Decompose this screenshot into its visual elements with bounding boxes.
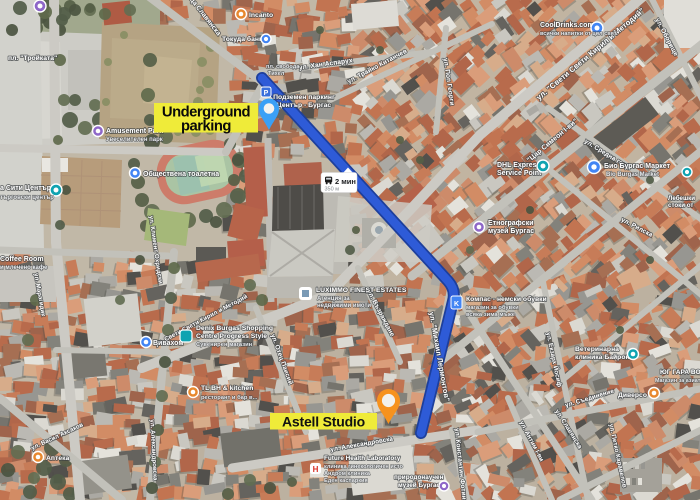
svg-text:parking: parking xyxy=(181,119,231,135)
svg-text:музей Бургас: музей Бургас xyxy=(398,481,441,489)
svg-text:магазин за обувки: магазин за обувки xyxy=(466,304,519,311)
svg-text:Диверсо: Диверсо xyxy=(618,392,647,399)
svg-text:DHL Express: DHL Express xyxy=(497,162,541,169)
svg-text:Компас - немски обувки: Компас - немски обувки xyxy=(466,295,547,303)
svg-text:2 мин: 2 мин xyxy=(335,177,356,186)
svg-text:Андром клиника: Андром клиника xyxy=(324,471,371,477)
svg-text:Подземен паркинг: Подземен паркинг xyxy=(273,94,335,101)
svg-text:Denix Burgas Shopping: Denix Burgas Shopping xyxy=(196,325,273,332)
svg-text:клиника Байрон: клиника Байрон xyxy=(575,353,630,361)
svg-text:Увеселителен парк: Увеселителен парк xyxy=(106,137,163,143)
svg-text:Център - Бургас: Център - Бургас xyxy=(277,102,332,109)
svg-text:и млечено кафе: и млечено кафе xyxy=(0,264,48,271)
svg-text:всяка зима мъже: всяка зима мъже xyxy=(466,312,516,318)
svg-text:K: K xyxy=(454,301,459,308)
svg-text:Етнографски: Етнографски xyxy=(488,220,534,227)
svg-text:Сувенирен магазин: Сувенирен магазин xyxy=(196,342,253,348)
svg-text:пл. свобода: пл. свобода xyxy=(266,63,300,70)
svg-text:LUXIMMO FINEST ESTATES: LUXIMMO FINEST ESTATES xyxy=(316,287,407,294)
svg-text:природонаучен: природонаучен xyxy=(394,474,444,481)
svg-text:ЮГ ГАРА ВО: ЮГ ГАРА ВО xyxy=(660,369,700,376)
svg-text:търговски център: търговски център xyxy=(0,195,54,201)
svg-text:H: H xyxy=(313,465,319,474)
svg-text:Centre Progress Style: Centre Progress Style xyxy=(196,333,267,340)
svg-text:музей Бургас: музей Бургас xyxy=(488,227,534,235)
svg-text:стоки от: стоки от xyxy=(668,202,693,209)
svg-text:Service Point: Service Point xyxy=(497,170,542,177)
svg-text:Coffee Room: Coffee Room xyxy=(0,256,44,263)
svg-text:CoolDrinks.com: CoolDrinks.com xyxy=(540,22,594,29)
svg-text:Обществена тоалетна: Обществена тоалетна xyxy=(143,170,219,178)
svg-text:пл. "Тройката": пл. "Тройката" xyxy=(8,54,57,62)
svg-text:Future Health Laboratory: Future Health Laboratory xyxy=(324,455,401,462)
svg-text:а Сити Център: а Сити Център xyxy=(0,185,51,192)
svg-text:P: P xyxy=(264,90,269,97)
svg-text:Ветеринарна: Ветеринарна xyxy=(575,346,619,353)
svg-text:клиника гинекологичен исто: клиника гинекологичен исто xyxy=(324,464,404,470)
svg-text:Био Бургас Маркет: Био Бургас Маркет xyxy=(604,163,671,170)
svg-text:всички напитки от цял свят: всички напитки от цял свят xyxy=(540,31,617,37)
svg-text:Bio Burgas Market: Bio Burgas Market xyxy=(606,172,659,178)
svg-text:Вивахом: Вивахом xyxy=(153,340,184,347)
svg-text:Тихел: Тихел xyxy=(268,71,285,77)
svg-text:Агенция за: Агенция за xyxy=(317,296,350,302)
svg-text:ресторант и бар в...: ресторант и бар в... xyxy=(201,394,258,401)
svg-text:350 м: 350 м xyxy=(325,187,340,193)
svg-text:Аптека: Аптека xyxy=(46,455,70,462)
svg-text:Incanto: Incanto xyxy=(249,12,273,19)
svg-text:Магазин за азиатски стоки: Магазин за азиатски стоки xyxy=(655,378,700,384)
svg-text:Astell Studio: Astell Studio xyxy=(282,414,365,430)
svg-text:TL BH & kitchen: TL BH & kitchen xyxy=(201,385,253,392)
svg-text:Токуда банк: Токуда банк xyxy=(222,35,263,43)
svg-text:Лебешки: Лебешки xyxy=(668,195,695,202)
svg-text:Еден каспаркия: Еден каспаркия xyxy=(324,478,368,484)
svg-text:недвижими имоти: недвижими имоти xyxy=(317,303,371,309)
